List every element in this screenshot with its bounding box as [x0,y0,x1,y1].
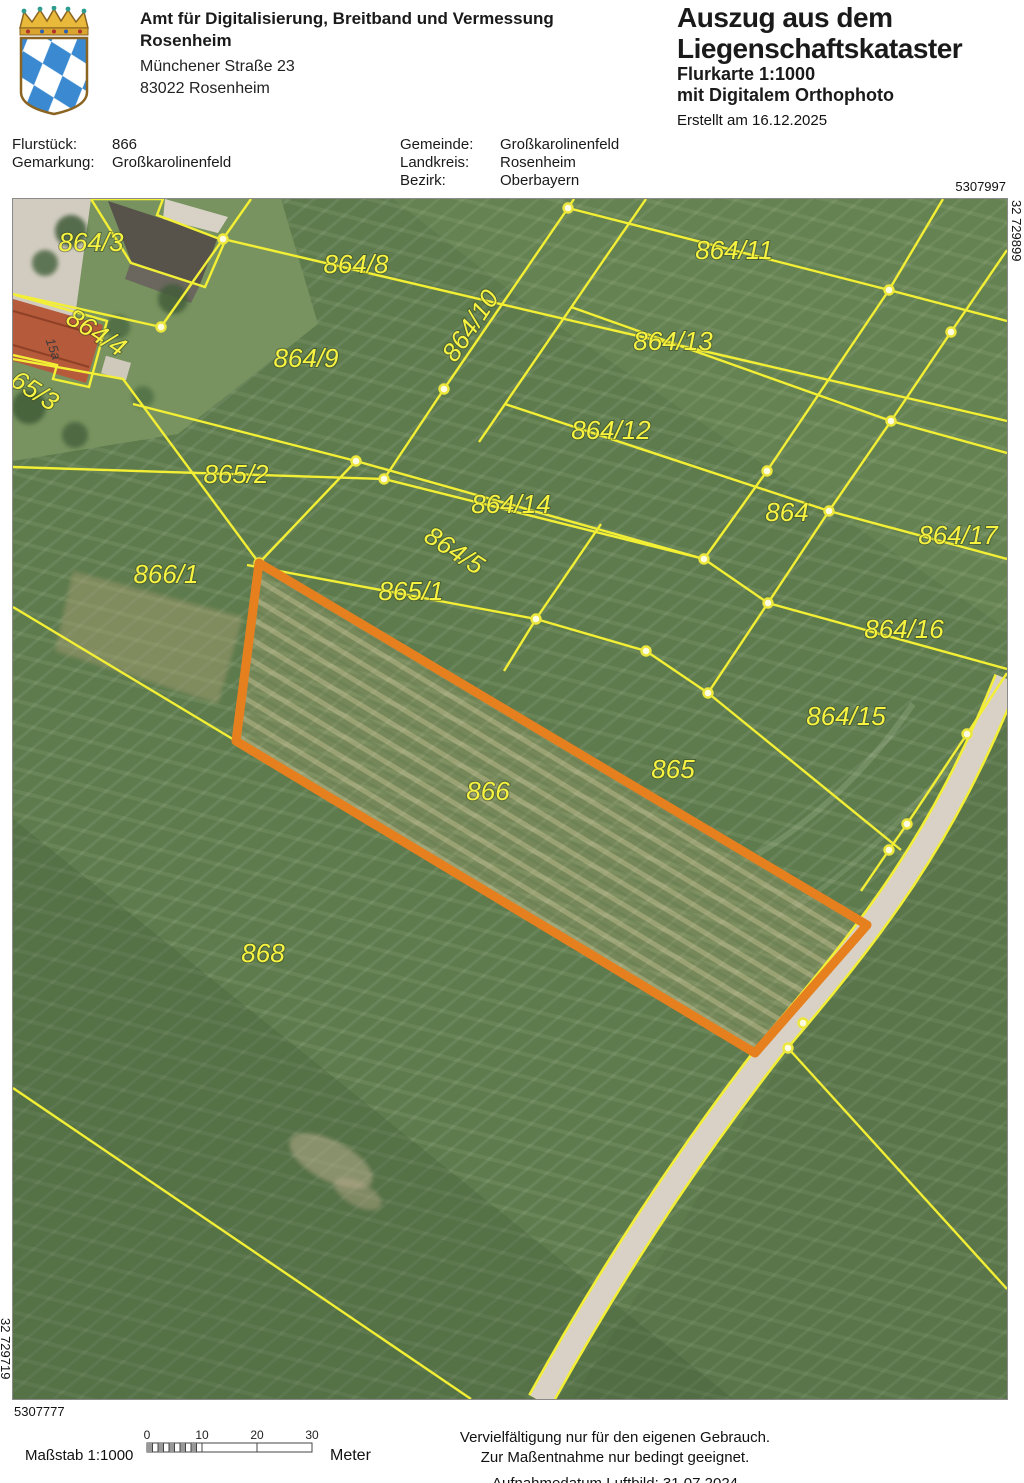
notice-line3: Aufnahmedatum Luftbild: 31.07.2024 [400,1474,830,1483]
document-title-block: Auszug aus dem Liegenschaftskataster Flu… [677,2,1022,129]
agency-street: Münchener Straße 23 [140,56,554,78]
agency-city: 83022 Rosenheim [140,78,554,100]
doc-title-line2: Liegenschaftskataster [677,33,1022,64]
doc-subtitle-line2: mit Digitalem Orthophoto [677,85,1022,106]
page: Amt für Digitalisierung, Breitband und V… [0,0,1024,1483]
usage-notice: Vervielfältigung nur für den eigenen Geb… [400,1428,830,1483]
agency-block: Amt für Digitalisierung, Breitband und V… [140,8,554,100]
parcel-label: 865 [651,754,695,784]
parcel-label: 866/1 [133,559,198,589]
parcel-label: 864/12 [571,415,651,445]
landkreis-label: Landkreis: [400,154,500,172]
landkreis-value: Rosenheim [500,154,576,172]
parcel-label: 864/3 [58,227,124,257]
notice-line2: Zur Maßentnahme nur bedingt geeignet. [400,1448,830,1468]
parcel-label: 864/11 [695,235,773,265]
notice-line1: Vervielfältigung nur für den eigenen Geb… [400,1428,830,1448]
scale-unit: Meter [330,1447,371,1465]
doc-created-date: Erstellt am 16.12.2025 [677,112,1022,129]
gemeinde-label: Gemeinde: [400,136,500,154]
parcel-label: 868 [241,938,285,968]
parcel-label: 864/9 [273,343,338,373]
parcel-label: 864/17 [918,520,999,550]
parcel-label: 864/14 [471,489,551,519]
scale-tick-10: 10 [195,1428,209,1442]
parcel-label: 864/15 [806,701,886,731]
scale-label: Maßstab 1:1000 [25,1447,133,1464]
doc-subtitle-line1: Flurkarte 1:1000 [677,64,1022,85]
cadastral-map[interactable]: 864/3 864/8 864/11 864/4 864/10 864/13 8… [12,198,1008,1400]
flurstueck-label: Flurstück: [12,136,112,154]
coord-top-right: 5307997 [880,179,1006,194]
coord-right-easting: 32 729899 [1009,200,1024,261]
gemarkung-value: Großkarolinenfeld [112,154,231,172]
parcel-label: 865/1 [378,576,443,606]
orthophoto-canvas: 864/3 864/8 864/11 864/4 864/10 864/13 8… [13,199,1007,1399]
bavaria-coat-of-arms-icon [14,6,94,121]
scale-tick-0: 0 [144,1428,151,1442]
scale-tick-20: 20 [250,1428,264,1442]
parcel-label: 865/2 [203,459,269,489]
bezirk-value: Oberbayern [500,172,579,190]
parcel-label: 864/13 [633,326,713,356]
parcel-label: 864/16 [864,614,944,644]
agency-name-line2: Rosenheim [140,30,554,52]
coord-bottom-left: 5307777 [14,1404,65,1419]
bezirk-label: Bezirk: [400,172,500,190]
scale-tick-30: 30 [305,1428,319,1442]
flurstueck-value: 866 [112,136,137,154]
parcel-label: 864 [765,497,808,527]
scale-bar: 0 10 20 30 [138,1428,338,1473]
doc-title-line1: Auszug aus dem [677,2,1022,33]
gemeinde-value: Großkarolinenfeld [500,136,619,154]
parcel-label-highlighted: 866 [466,776,510,806]
gemarkung-label: Gemarkung: [12,154,112,172]
parcel-label: 864/8 [323,249,389,279]
agency-name-line1: Amt für Digitalisierung, Breitband und V… [140,8,554,30]
